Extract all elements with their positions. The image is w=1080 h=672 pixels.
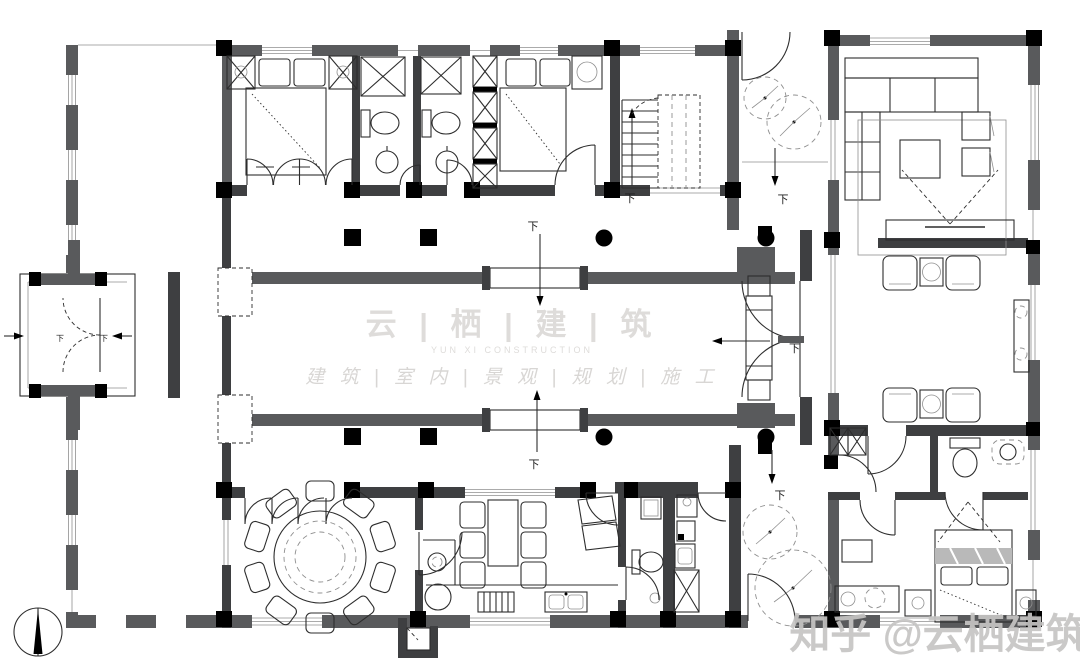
gate-double-door [63, 298, 100, 372]
floor-plan-canvas: 下 下 下 下 下 下 下 下 云 | 栖 | 建 | 筑 YUN XI CON… [0, 0, 1080, 672]
entrance-gate [4, 240, 135, 430]
chair [521, 502, 546, 528]
stockpot-burner [425, 584, 451, 610]
step-label: 下 [789, 343, 800, 355]
step-label: 下 [625, 193, 636, 205]
window [252, 615, 322, 628]
bathroom-2 [421, 57, 472, 185]
tree [744, 77, 786, 119]
armchair [883, 388, 917, 422]
staircase [622, 95, 700, 188]
armchair [883, 256, 917, 290]
french-door [247, 159, 273, 185]
chair [460, 562, 485, 588]
brand-watermark-services: 建 筑 | 室 内 | 景 观 | 规 划 | 施 工 [305, 366, 718, 388]
kitchen [419, 496, 620, 612]
master-bed [935, 502, 1012, 622]
chair [460, 532, 485, 558]
bathroom-1 [361, 57, 420, 185]
window [1028, 450, 1040, 530]
window [870, 35, 930, 46]
brand-watermark-subtitle: YUN XI CONSTRUCTION [431, 345, 593, 355]
door [868, 436, 906, 474]
chair [521, 562, 546, 588]
south-step-crossing [490, 410, 580, 430]
step-arrow [772, 148, 779, 186]
appliance [677, 521, 695, 541]
window [828, 120, 839, 180]
sink [992, 440, 1024, 464]
floor-plan-drawing: 下 下 下 下 下 下 下 下 云 | 栖 | 建 | 筑 YUN XI CON… [0, 0, 1080, 672]
french-door [326, 159, 352, 185]
door [860, 500, 895, 535]
window [262, 45, 312, 56]
step-label: 下 [528, 221, 539, 233]
bench [1014, 300, 1029, 372]
window [470, 45, 490, 56]
brand-watermark-title: 云 | 栖 | 建 | 筑 [366, 307, 659, 342]
window [66, 590, 78, 612]
window [470, 615, 550, 628]
step-arrow-down [769, 450, 776, 484]
west-platform [218, 395, 252, 443]
door [748, 574, 795, 621]
french-door [274, 159, 300, 185]
brand-watermark: 云 | 栖 | 建 | 筑 YUN XI CONSTRUCTION 建 筑 | … [305, 307, 718, 388]
wok-burner [428, 553, 446, 571]
window [66, 440, 78, 470]
stool [842, 540, 872, 562]
door-leaf [272, 498, 298, 524]
courtyard [218, 234, 804, 484]
window [828, 255, 839, 393]
door [698, 493, 726, 521]
chair [521, 532, 546, 558]
window [66, 75, 78, 105]
french-door [300, 159, 326, 185]
window [1028, 560, 1040, 600]
utility-room [674, 493, 726, 612]
chair [460, 502, 485, 528]
axis-tick [112, 333, 132, 340]
counter-sink [675, 544, 695, 568]
armchair [946, 388, 980, 422]
dining-chairs [243, 481, 396, 633]
credit-watermark: 知乎 @云栖建筑 [789, 611, 1080, 657]
storage-x [674, 570, 699, 612]
window [66, 150, 78, 180]
bedroom-2 [500, 56, 602, 185]
kitchen-table [488, 500, 518, 566]
window [520, 45, 558, 56]
toilet [950, 438, 980, 477]
tree [767, 95, 821, 149]
door [742, 32, 790, 80]
toilet [632, 550, 663, 574]
master-bathroom [950, 438, 1024, 477]
tea-room [883, 256, 1029, 422]
armchair [962, 112, 994, 140]
shower [361, 57, 405, 96]
window [398, 45, 418, 56]
window [650, 185, 720, 196]
double-bed [246, 59, 326, 175]
fridge [677, 495, 697, 517]
step-arrow-west [712, 338, 770, 345]
armchair [946, 256, 980, 290]
sectional-sofa [845, 58, 978, 200]
corner-table [572, 56, 602, 89]
window [1028, 285, 1040, 360]
step-label: 下 [56, 334, 64, 343]
round-dining-table [274, 511, 366, 603]
window [465, 487, 555, 498]
step-label: 下 [778, 194, 789, 206]
bedroom-1 [227, 56, 357, 185]
window [66, 515, 78, 545]
axis-tick [4, 333, 24, 340]
step-label: 下 [775, 490, 786, 502]
armchair [962, 148, 994, 176]
side-table [920, 258, 943, 286]
toilet [361, 110, 399, 137]
west-platform [218, 268, 252, 316]
living-room [845, 58, 1014, 255]
desk [835, 586, 899, 612]
screen-wall [168, 272, 180, 398]
toilet [422, 110, 460, 137]
window [1028, 210, 1040, 240]
side-court-south [743, 505, 831, 626]
side-court-north [742, 32, 828, 186]
tv-console [886, 170, 1014, 240]
window [1028, 85, 1040, 160]
tree [743, 505, 797, 559]
step-label: 下 [529, 459, 540, 471]
bathroom-door [945, 492, 983, 530]
door [555, 145, 595, 185]
coffee-table [900, 140, 940, 178]
side-table [920, 390, 943, 418]
north-arrow-compass [14, 608, 62, 656]
double-sink [545, 592, 587, 612]
gas-cooktop [478, 592, 514, 612]
double-bed [500, 59, 570, 171]
window [222, 520, 231, 565]
sink [376, 146, 398, 173]
corner-cabinet [578, 496, 620, 550]
north-step-crossing [490, 268, 580, 288]
cabinet [641, 497, 661, 519]
step-label: 下 [100, 334, 108, 343]
dining-room [243, 481, 396, 633]
window [640, 45, 695, 56]
shower [421, 57, 461, 94]
wardrobe-column [473, 56, 497, 188]
